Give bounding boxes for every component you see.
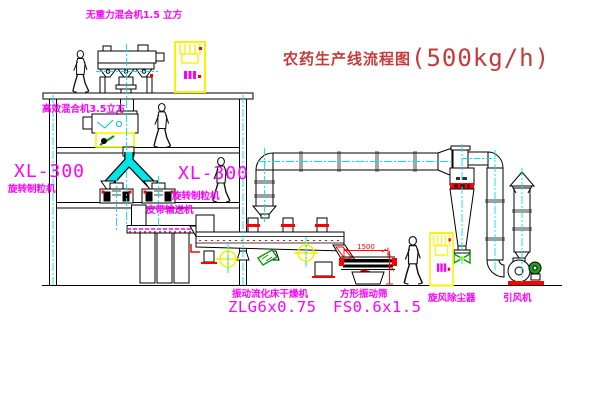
dim-sieve-length: 1500 xyxy=(357,243,375,251)
drawing-title: 农药生产线流程图 (500kg/h) xyxy=(283,44,550,72)
label-granulator-mid-name: 旋转制粒机 xyxy=(172,192,220,202)
exhaust-duct xyxy=(253,148,452,218)
belt-conveyor xyxy=(127,205,200,283)
gravity-free-mixer xyxy=(98,45,164,93)
label-granulator-mid-model: XL-300 xyxy=(178,165,249,183)
dim-sieve-height: 340 xyxy=(388,259,396,272)
label-granulator-left-model: XL-300 xyxy=(14,163,85,181)
label-belt-conveyor: 皮带输送机 xyxy=(146,206,194,216)
label-granulator-left-name: 旋转制粒机 xyxy=(8,185,56,195)
person-figure xyxy=(73,50,89,92)
label-sieve-model: FS0.6x1.5 xyxy=(333,300,422,316)
label-cyclone: 旋风除尘器 xyxy=(428,294,476,304)
fluid-bed-dryer xyxy=(196,215,355,277)
title-capacity: (500kg/h) xyxy=(411,44,550,72)
control-cabinet-ground xyxy=(430,233,453,286)
title-chinese: 农药生产线流程图 xyxy=(283,48,411,72)
cad-flowsheet: 1500 340 xyxy=(0,0,600,403)
label-fan: 引风机 xyxy=(503,294,532,304)
person-figure xyxy=(154,103,171,147)
person-figure xyxy=(404,237,422,285)
label-floor2-mixer: 高效混合机3.5立方 xyxy=(42,105,125,115)
label-top-mixer: 无重力混合机1.5 立方 xyxy=(86,11,182,21)
induced-draft-fan xyxy=(508,258,544,285)
control-cabinet-roof xyxy=(175,42,205,92)
label-dryer-model: ZLG6x0.75 xyxy=(228,300,317,316)
